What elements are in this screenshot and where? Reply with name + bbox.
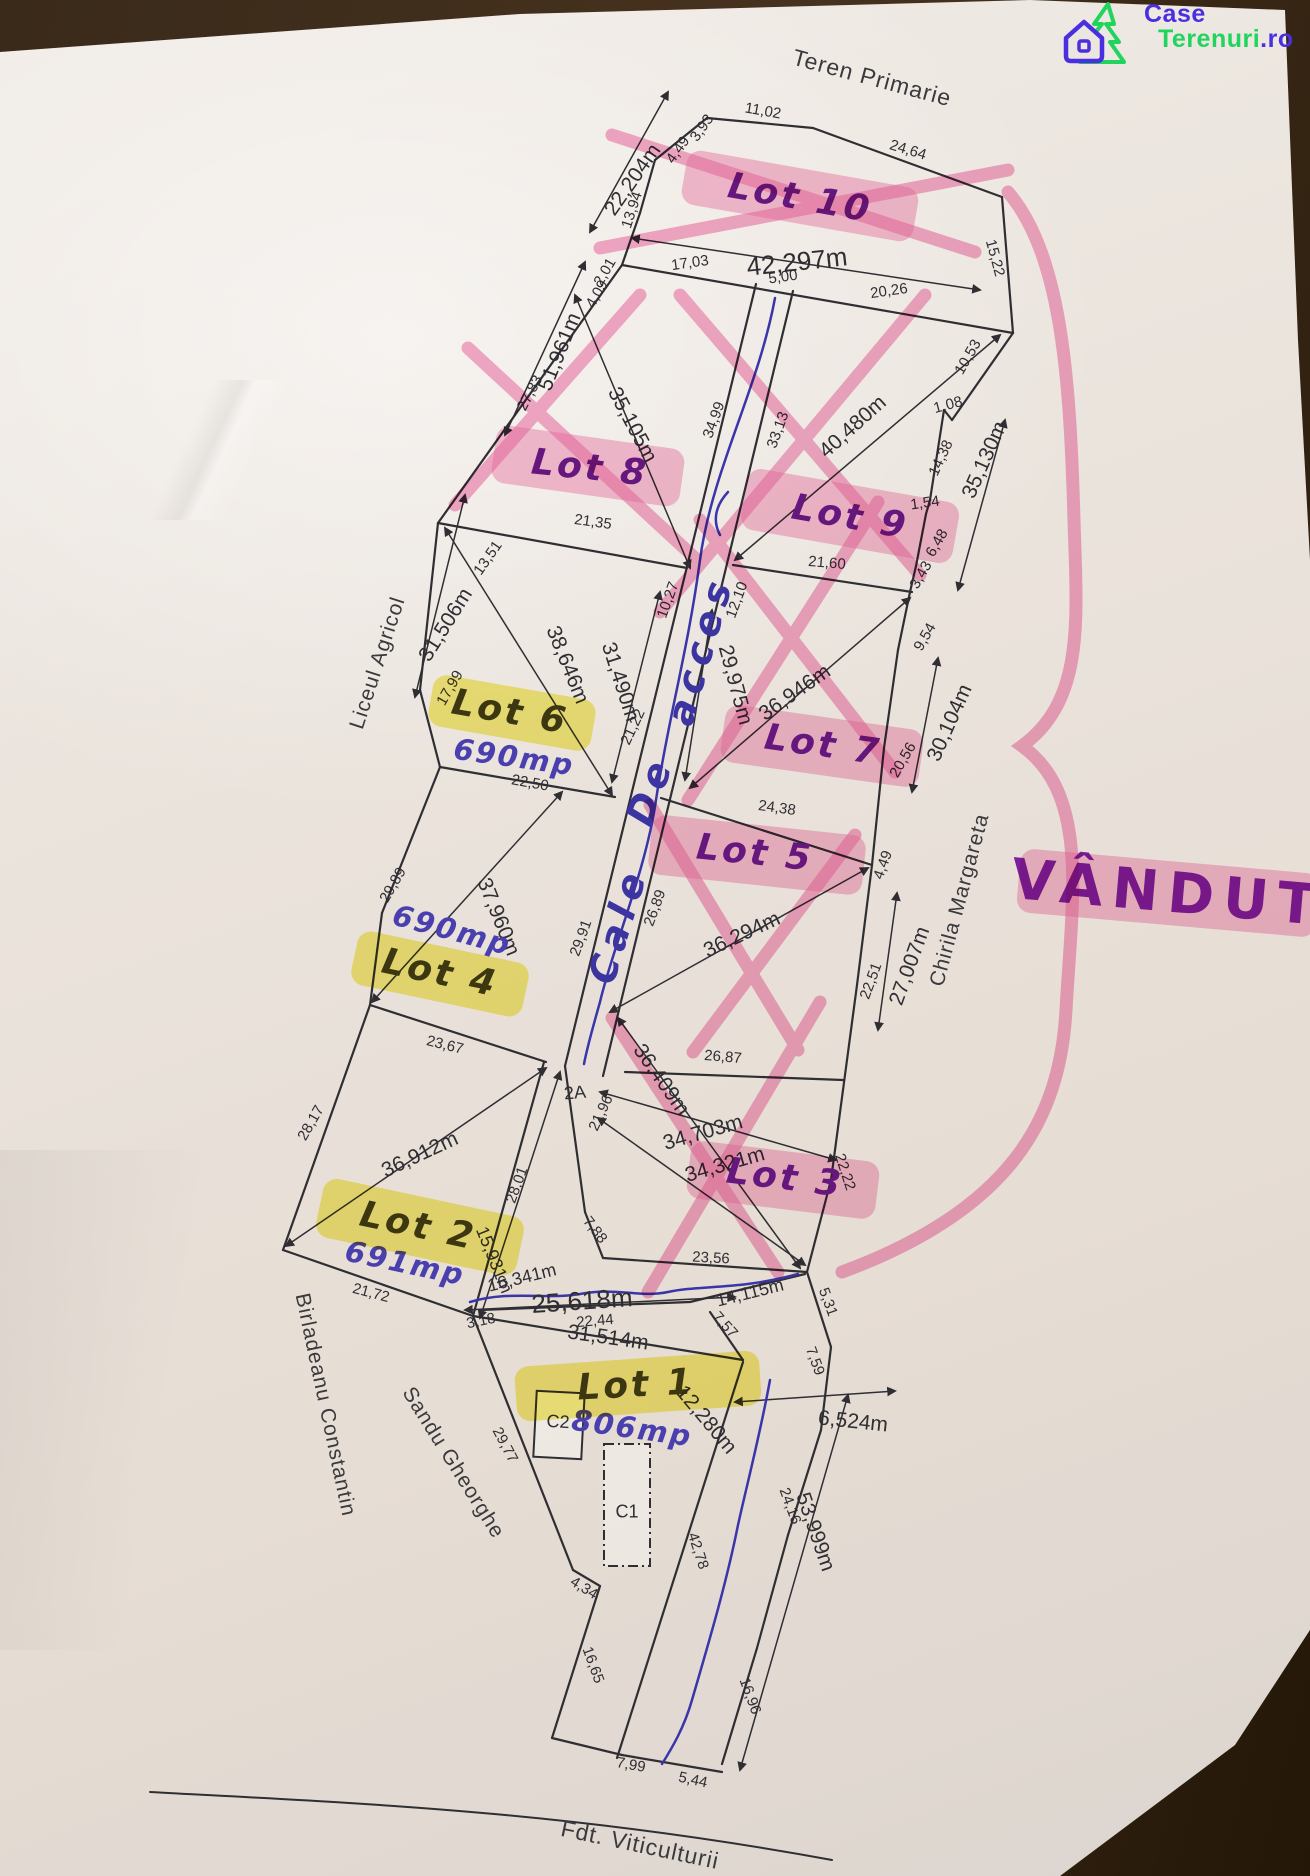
dim-26-87: 26,87	[704, 1047, 743, 1067]
dim-23-56: 23,56	[692, 1249, 730, 1268]
logo-text-terenuri: Terenuri	[1158, 25, 1260, 53]
building-c1: C1	[615, 1502, 638, 1523]
paper-sheet	[0, 0, 1310, 1876]
road-number-2a: 2A	[563, 1082, 587, 1105]
photo-background: Teren Primarie11,0224,643,934,4922,204m1…	[0, 0, 1310, 1876]
dim-21-60: 21,60	[808, 553, 847, 573]
logo-text-case: Case	[1144, 2, 1294, 27]
logo-text-ro: .ro	[1260, 25, 1293, 53]
site-logo: Case Terenuri.ro	[1056, 2, 1306, 66]
logo-icon	[1056, 2, 1140, 66]
building-c2: C2	[546, 1411, 570, 1433]
